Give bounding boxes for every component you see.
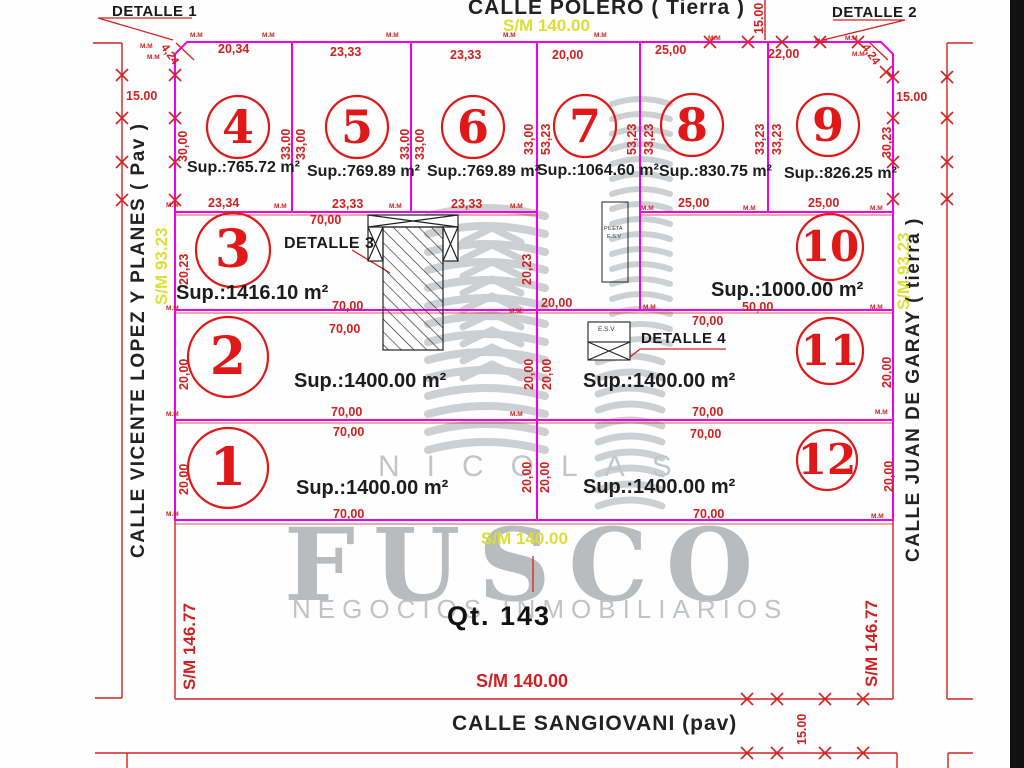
- dim-label: 15.00: [896, 90, 927, 104]
- dim-label: 23,33: [330, 45, 361, 59]
- mm-marker: M.M: [871, 513, 884, 520]
- dim-label: 70,00: [331, 405, 362, 419]
- mm-marker: M.M: [845, 35, 858, 42]
- lot-number: 9: [788, 95, 868, 155]
- dim-label: 23,33: [451, 197, 482, 211]
- street-name-bottom: CALLE SANGIOVANI (pav): [452, 712, 737, 736]
- dim-label-vertical: 33,23: [753, 124, 767, 155]
- dim-label: 70,00: [693, 507, 724, 521]
- lot-area: Sup.:769.89 m²: [307, 163, 420, 181]
- dim-label: 70,00: [333, 425, 364, 439]
- lot-area: Sup.:1416.10 m²: [176, 282, 328, 305]
- mm-marker: M.M: [743, 205, 756, 212]
- mm-marker: M.M: [870, 304, 883, 311]
- lot-area: Sup.:830.75 m²: [659, 163, 772, 181]
- dim-label-vertical: 20,00: [177, 359, 191, 390]
- dim-label: 70,00: [310, 213, 341, 227]
- mm-marker: M.M: [875, 409, 888, 416]
- dim-label-vertical: 33,00: [522, 124, 536, 155]
- dim-label-vertical: 20,23: [177, 254, 191, 285]
- dim-label-vertical: 33,00: [413, 129, 427, 160]
- lot-number: 2: [188, 323, 268, 391]
- dim-label: 25,00: [808, 196, 839, 210]
- dim-label: 70,00: [329, 322, 360, 336]
- frontage-bottom-outer: S/M 140.00: [476, 671, 568, 692]
- dim-label: 70,00: [690, 427, 721, 441]
- lot-area: Sup.:1400.00 m²: [583, 370, 735, 393]
- labels-layer: CALLE POLERO ( Tierra ) CALLE SANGIOVANI…: [0, 0, 1024, 768]
- lot-number: 5: [317, 97, 397, 157]
- mm-marker: M.M: [166, 411, 179, 418]
- lot-number: 10: [790, 220, 870, 274]
- mm-marker: M.M: [262, 32, 275, 39]
- dim-label: 25,00: [678, 196, 709, 210]
- lot-number: 12: [787, 433, 867, 487]
- mm-marker: M.M: [166, 202, 179, 209]
- lot-area: Sup.:769.89 m²: [427, 163, 540, 181]
- dim-label-vertical: 30,00: [176, 131, 190, 162]
- dim-label: 20,00: [552, 48, 583, 62]
- survey-plan: NICOLAS FUSCO NEGOCIOS INMOBILIARIOS: [0, 0, 1024, 768]
- dim-label-vertical: 20,23: [520, 254, 534, 285]
- mm-marker: M.M: [815, 38, 828, 45]
- dim-label-vertical: 15.00: [752, 3, 766, 34]
- lot-area: Sup.:765.72 m²: [187, 159, 300, 177]
- lot-number: 6: [433, 97, 513, 157]
- dim-label: 70,00: [333, 507, 364, 521]
- dim-label-vertical: 20,00: [522, 359, 536, 390]
- pileta-esv-text: E.S.V: [607, 234, 621, 241]
- dim-label-vertical: 20,00: [882, 461, 896, 492]
- mm-marker: M.M: [190, 32, 203, 39]
- dim-label-vertical: 20,00: [540, 359, 554, 390]
- pileta-text: PILETA: [604, 226, 623, 233]
- dim-label: 50,00: [742, 300, 773, 314]
- dim-label-vertical: 30,23: [880, 127, 894, 158]
- dim-label-vertical: 20,00: [538, 462, 552, 493]
- mm-marker: M.M: [166, 511, 179, 518]
- lot-number: 4: [198, 97, 278, 157]
- dim-label: 20,00: [541, 296, 572, 310]
- chamfer-dim: 4,24: [158, 42, 181, 67]
- mm-marker: M.M: [643, 304, 656, 311]
- mm-marker: M.M: [870, 205, 883, 212]
- dim-label-vertical: 33,00: [294, 129, 308, 160]
- frontage-left-low: S/M 146.77: [180, 603, 200, 690]
- dim-label: 15.00: [126, 89, 157, 103]
- lot-number: 3: [193, 216, 273, 284]
- dim-label: 23,34: [208, 196, 239, 210]
- lot-area: Sup.:826.25 m²: [784, 165, 897, 183]
- lot-area: Sup.:1064.60 m²: [537, 162, 659, 180]
- screenshot-edge-bar: [1010, 0, 1024, 768]
- mm-marker: M.M: [510, 203, 523, 210]
- lot-number: 1: [188, 434, 268, 502]
- block-label: Qt. 143: [447, 601, 551, 632]
- dim-label-vertical: 15.00: [795, 714, 809, 745]
- dim-label-vertical: 20,00: [880, 357, 894, 388]
- lot-number: 7: [545, 96, 625, 156]
- frontage-right-low: S/M 146.77: [862, 600, 882, 687]
- mm-marker: M.M: [147, 54, 160, 61]
- mm-marker: M.M: [852, 51, 865, 58]
- detalle2-label: DETALLE 2: [832, 4, 917, 21]
- detalle1-label: DETALLE 1: [112, 3, 197, 20]
- dim-label: 70,00: [332, 299, 363, 313]
- dim-label: 23,33: [332, 197, 363, 211]
- mm-marker: M.M: [594, 32, 607, 39]
- mm-marker: M.M: [140, 43, 153, 50]
- dim-label-vertical: 53,23: [539, 124, 553, 155]
- mm-marker: M.M: [708, 35, 721, 42]
- mm-marker: M.M: [503, 32, 516, 39]
- mm-marker: M.M: [389, 203, 402, 210]
- street-name-left: CALLE VICENTE LOPEZ Y PLANES ( Pav ): [128, 123, 150, 558]
- mm-marker: M.M: [166, 305, 179, 312]
- dim-label: 70,00: [692, 314, 723, 328]
- frontage-left: S/M 93.23: [152, 228, 172, 306]
- dim-label-vertical: 33,00: [398, 129, 412, 160]
- detalle3-label: DETALLE 3: [284, 235, 374, 253]
- lot-area: Sup.:1400.00 m²: [296, 477, 448, 500]
- lot-area: Sup.:1400.00 m²: [294, 370, 446, 393]
- dim-label-vertical: 33,23: [770, 124, 784, 155]
- dim-label-vertical: 33,00: [279, 129, 293, 160]
- dim-label: 25,00: [655, 43, 686, 57]
- frontage-bottom-inner: S/M 140.00: [481, 529, 568, 549]
- mm-marker: M.M: [510, 411, 523, 418]
- dim-label: 22,00: [768, 47, 799, 61]
- dim-label: 23,33: [450, 48, 481, 62]
- lot-area: Sup.:1000.00 m²: [711, 279, 863, 302]
- dim-label: 20,34: [218, 42, 249, 56]
- lot-number: 8: [652, 95, 732, 155]
- frontage-top: S/M 140.00: [503, 16, 590, 36]
- mm-marker: M.M: [386, 32, 399, 39]
- dim-label-vertical: 53,23: [625, 124, 639, 155]
- dim-label-vertical: 20,00: [177, 464, 191, 495]
- detalle4-label: DETALLE 4: [641, 330, 726, 347]
- esv-box-text: E.S.V: [598, 326, 615, 333]
- dim-label-vertical: 33,23: [642, 124, 656, 155]
- dim-label-vertical: 20,00: [520, 462, 534, 493]
- mm-marker: M.M: [274, 203, 287, 210]
- dim-label: 70,00: [692, 405, 723, 419]
- mm-marker: M.M: [641, 205, 654, 212]
- mm-marker: M.M: [509, 308, 522, 315]
- frontage-right: S/M 93.23: [894, 233, 914, 311]
- lot-area: Sup.:1400.00 m²: [583, 476, 735, 499]
- lot-number: 11: [790, 324, 870, 378]
